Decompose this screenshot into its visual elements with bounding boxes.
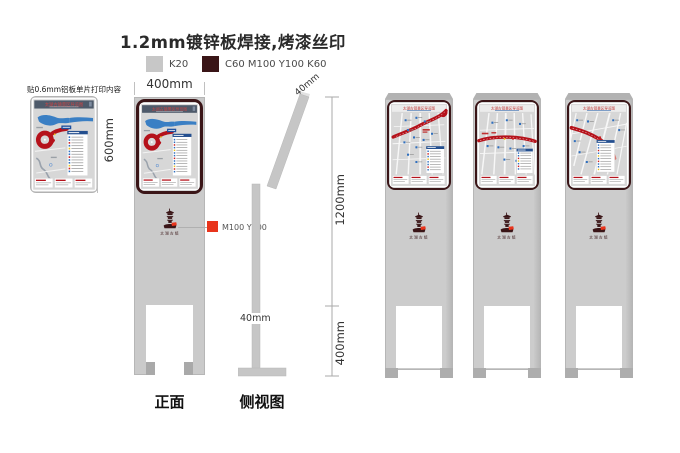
legend-swatch-k20 <box>146 56 163 72</box>
dim-600-line <box>97 101 98 193</box>
side-base-plate <box>238 368 286 376</box>
logo-color-leader-line <box>178 227 207 228</box>
map-graphic-small <box>31 97 97 192</box>
dim-1200-label: 1200mm <box>333 174 347 226</box>
aluminum-print-panel <box>30 96 98 193</box>
side-view-graphic <box>238 78 348 383</box>
logo-color-swatch <box>207 221 218 232</box>
stand-logo <box>493 211 521 245</box>
front-stand-logo <box>156 207 184 241</box>
stand-3d-2 <box>473 93 541 385</box>
stand-foot-right <box>440 368 453 378</box>
legend-label-k20: K20 <box>169 59 188 70</box>
stand-foot-left <box>473 368 486 378</box>
dim-400-base-label: 400mm <box>333 321 347 365</box>
front-foot-right <box>184 362 193 375</box>
legend-swatch-dark <box>202 56 219 72</box>
side-angled-head <box>267 94 309 189</box>
stand-foot-right <box>528 368 541 378</box>
map-graphic-left-band <box>569 102 629 188</box>
side-view-label: 侧视图 <box>232 391 292 412</box>
stand-foot-left <box>385 368 398 378</box>
signage-spec-sheet: 1.2mm镀锌板焊接,烤漆丝印 K20 C60 M100 Y100 K60 贴0… <box>0 0 680 453</box>
stand-logo <box>405 211 433 245</box>
map-graphic-band <box>477 102 537 188</box>
front-view-label: 正面 <box>134 391 205 412</box>
dim-tick-left <box>134 82 135 95</box>
legend-label-dark: C60 M100 Y100 K60 <box>225 59 326 70</box>
stand-3d-3 <box>565 93 633 385</box>
stand-map-frame <box>567 100 631 190</box>
dim-40-pole-label: 40mm <box>239 313 272 324</box>
stand-map-frame <box>387 100 451 190</box>
stand-foot-right <box>620 368 633 378</box>
front-map-frame <box>136 99 203 194</box>
map-graphic-front <box>139 102 200 191</box>
stand-logo <box>585 211 613 245</box>
map-graphic-ribbon <box>389 102 449 188</box>
dim-400-width-label: 400mm <box>134 77 205 91</box>
stand-legs-cutout <box>396 306 442 368</box>
dim-600-label: 600mm <box>102 118 116 162</box>
stand-foot-left <box>565 368 578 378</box>
stand-legs-cutout <box>484 306 530 368</box>
stand-map-frame <box>475 100 539 190</box>
stand-legs-cutout <box>576 306 622 368</box>
aluminum-note: 贴0.6mm铝板单片打印内容 <box>27 84 121 95</box>
front-foot-left <box>146 362 155 375</box>
dim-tick-right <box>204 82 205 95</box>
stand-3d-1 <box>385 93 453 385</box>
side-pole <box>252 184 260 369</box>
page-title: 1.2mm镀锌板焊接,烤漆丝印 <box>120 29 346 53</box>
